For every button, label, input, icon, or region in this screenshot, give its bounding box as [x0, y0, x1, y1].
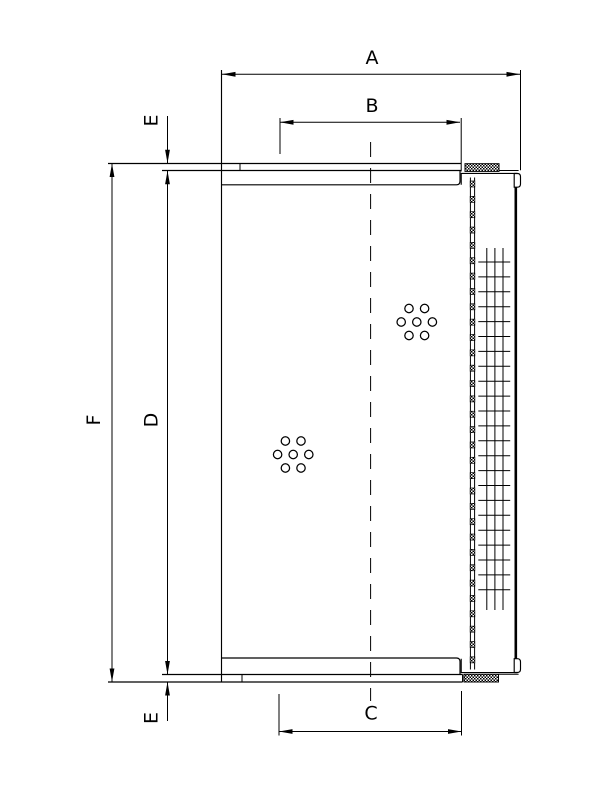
- dimension-E-bottom: E: [141, 682, 170, 724]
- bottom-flange-seam: [222, 658, 461, 675]
- dim-b-arrow-left: [280, 120, 294, 125]
- dim-e-top-arrow: [165, 150, 170, 164]
- bottom-cap-seat-line: [461, 659, 517, 673]
- filter-media-mesh: [478, 248, 510, 610]
- filter-element-drawing: A B C F D E E: [0, 0, 612, 792]
- top-gasket-seal: [465, 164, 499, 172]
- dim-e-bottom-label: E: [141, 712, 163, 724]
- dim-d-label: D: [141, 413, 163, 428]
- dim-a-arrow-left: [222, 72, 236, 77]
- dimension-F: F: [83, 164, 114, 683]
- dim-d-arrow-bottom: [165, 661, 170, 675]
- dim-f-arrow-top: [110, 164, 115, 178]
- dim-f-arrow-bottom: [110, 669, 115, 683]
- top-cap-seat-line: [461, 173, 517, 184]
- part-outline: [108, 70, 463, 701]
- dim-d-arrow-top: [165, 171, 170, 185]
- dim-c-arrow-right: [448, 729, 462, 734]
- core-section: [461, 164, 520, 682]
- drawing-sheet: A B C F D E E: [0, 0, 612, 792]
- dim-e-top-label: E: [141, 114, 163, 126]
- dimension-B: B: [280, 95, 461, 171]
- dim-c-label: C: [364, 703, 377, 725]
- top-flange-seam: [222, 171, 461, 185]
- dimension-E-top: E: [141, 114, 170, 163]
- dim-f-label: F: [83, 415, 105, 426]
- dim-b-label: B: [365, 95, 378, 117]
- dim-e-bottom-arrow: [165, 682, 170, 696]
- dim-b-arrow-right: [447, 120, 461, 125]
- bottom-right-lip: [514, 659, 520, 673]
- dim-c-arrow-left: [279, 729, 293, 734]
- dimension-D: D: [141, 171, 170, 675]
- top-right-lip: [514, 174, 520, 188]
- dim-a-arrow-right: [507, 72, 521, 77]
- bottom-gasket-seal: [464, 674, 499, 682]
- perforation-hole-clusters: [273, 304, 436, 472]
- dim-a-label: A: [366, 47, 379, 69]
